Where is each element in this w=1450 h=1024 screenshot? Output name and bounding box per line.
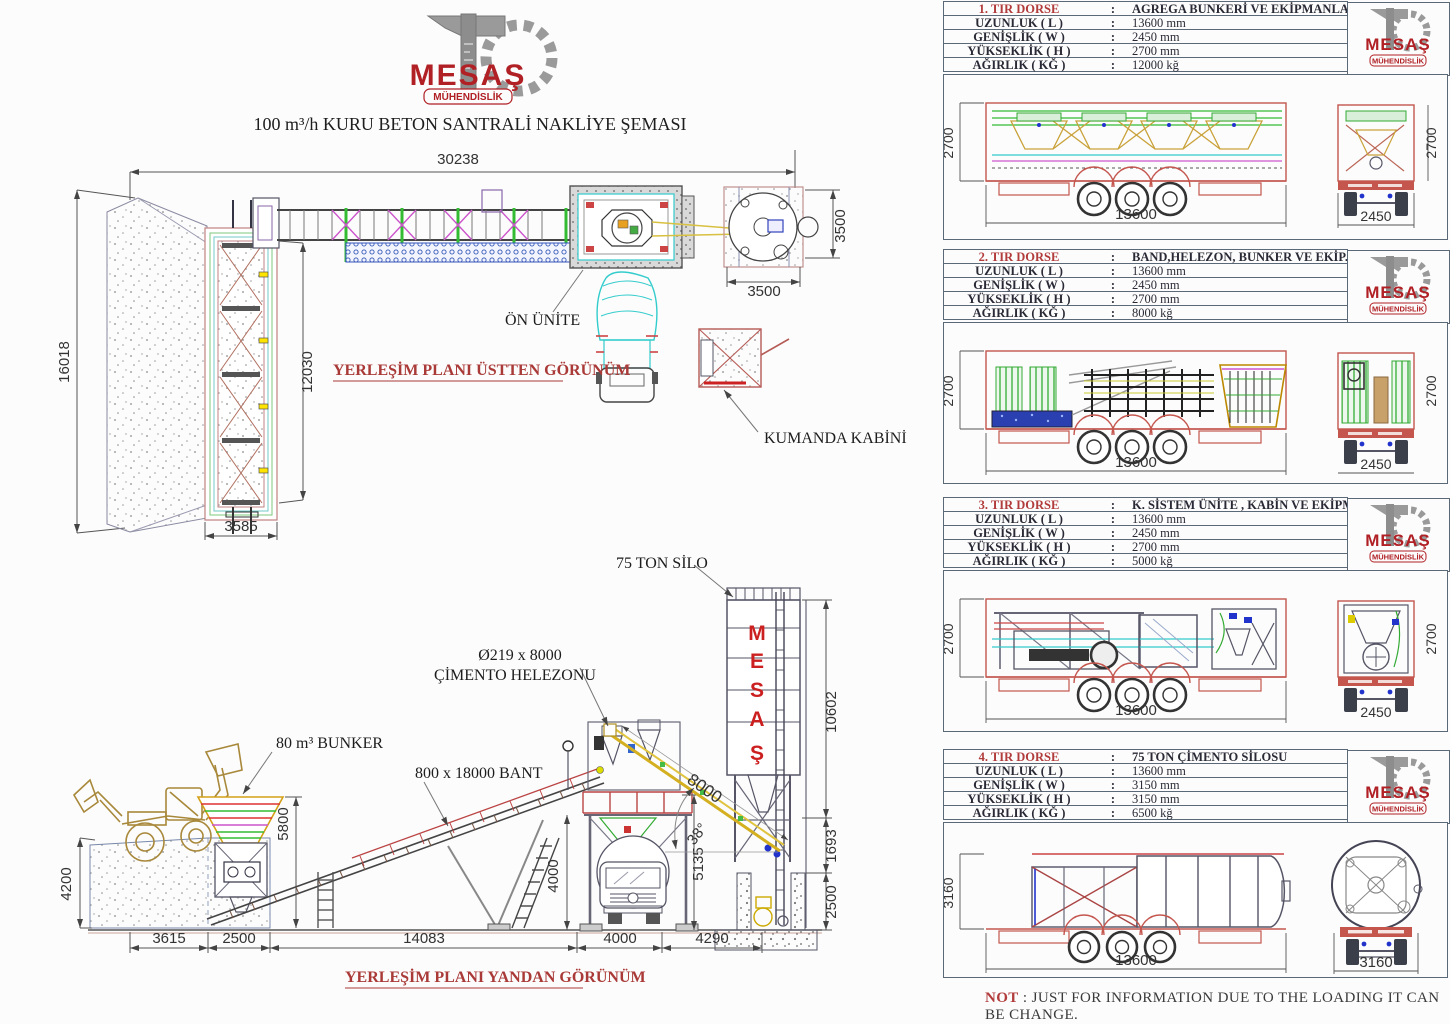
dim-text-12030: 12030 bbox=[299, 351, 316, 393]
silo-letter-m: M bbox=[748, 622, 766, 645]
colon: : bbox=[1094, 2, 1132, 17]
dim-text-2500-h: 2500 bbox=[222, 930, 255, 947]
trailer-drawing-3: 2700 13600 2450 2700 bbox=[943, 570, 1448, 732]
silo-letter-s2: Ş bbox=[750, 742, 764, 765]
dim-text-3585: 3585 bbox=[224, 518, 257, 535]
table-row: 2. TIR DORSE : BAND,HELEZON, BUNKER VE E… bbox=[943, 249, 1348, 264]
silo-top-view bbox=[724, 187, 818, 267]
dim-text-4000-h: 4000 bbox=[603, 930, 636, 947]
row-value: 8000 kğ bbox=[1132, 306, 1347, 321]
spec-block-3: 3. TIR DORSE : K. SİSTEM ÜNİTE , KABİN V… bbox=[943, 498, 1448, 568]
logo-name: MESAŞ bbox=[1365, 783, 1430, 802]
side-view: 80 m³ BUNKER 5800 4200 bbox=[58, 554, 840, 988]
row-label: 1. TIR DORSE bbox=[944, 2, 1094, 17]
row-label: YÜKSEKLİK ( H ) bbox=[944, 292, 1094, 307]
row-label: UZUNLUK ( L ) bbox=[944, 264, 1094, 279]
trailer-dim-rear-height: 2700 bbox=[1423, 127, 1439, 158]
table-row: YÜKSEKLİK ( H ) : 3150 mm bbox=[943, 791, 1348, 806]
footer-note: NOT : JUST FOR INFORMATION DUE TO THE LO… bbox=[985, 990, 1450, 1024]
row-label: UZUNLUK ( L ) bbox=[944, 512, 1094, 527]
row-label: YÜKSEKLİK ( H ) bbox=[944, 792, 1094, 807]
table-row: AĞIRLIK ( KĞ ) : 5000 kğ bbox=[943, 553, 1348, 568]
trailer-dim-rear-width: 2450 bbox=[1360, 208, 1391, 224]
table-row: 3. TIR DORSE : K. SİSTEM ÜNİTE , KABİN V… bbox=[943, 497, 1348, 512]
dim-text-3500-v: 3500 bbox=[832, 209, 849, 242]
row-value: 2450 mm bbox=[1132, 526, 1347, 541]
dim-text-5800: 5800 bbox=[275, 807, 292, 840]
belt-leader bbox=[424, 782, 448, 826]
dim-text-10602: 10602 bbox=[823, 691, 840, 733]
row-value: BAND,HELEZON, BUNKER VE EKİP. bbox=[1132, 250, 1348, 265]
row-label: UZUNLUK ( L ) bbox=[944, 764, 1094, 779]
trailer-dim-rear-width: 2450 bbox=[1360, 456, 1391, 472]
trailer-dim-length: 13600 bbox=[1115, 952, 1157, 969]
table-row: AĞIRLIK ( KĞ ) : 8000 kğ bbox=[943, 305, 1348, 320]
table-row: UZUNLUK ( L ) : 13600 mm bbox=[943, 511, 1348, 526]
silo-letter-e: E bbox=[750, 650, 764, 673]
colon: : bbox=[1094, 498, 1132, 513]
silo-pit bbox=[715, 873, 817, 950]
logo-name: MESAŞ bbox=[410, 59, 527, 92]
table-row: 1. TIR DORSE : AGREGA BUNKERİ VE EKİPMAN… bbox=[943, 1, 1348, 16]
colon: : bbox=[1094, 264, 1132, 279]
spec-table-2: 2. TIR DORSE : BAND,HELEZON, BUNKER VE E… bbox=[943, 249, 1348, 320]
row-label: 2. TIR DORSE bbox=[944, 250, 1094, 265]
row-label: AĞIRLIK ( KĞ ) bbox=[944, 58, 1094, 73]
trailer-dim-height: 2700 bbox=[944, 127, 956, 158]
logo-sub: MÜHENDİSLİK bbox=[1372, 805, 1425, 814]
trailer-rear-view: 2450 2700 bbox=[1338, 353, 1439, 473]
logo-name: MESAŞ bbox=[1365, 35, 1430, 54]
logo-sub: MÜHENDİSLİK bbox=[433, 90, 503, 103]
dim-text-14083: 14083 bbox=[403, 930, 445, 947]
row-label: 4. TIR DORSE bbox=[944, 750, 1094, 765]
row-value: 2450 mm bbox=[1132, 278, 1347, 293]
logo-sub: MÜHENDİSLİK bbox=[1372, 57, 1425, 66]
row-value: 3150 mm bbox=[1132, 792, 1347, 807]
table-row: UZUNLUK ( L ) : 13600 mm bbox=[943, 763, 1348, 778]
silo-trailer-rear-view: 3160 bbox=[1332, 841, 1422, 974]
colon: : bbox=[1094, 30, 1132, 45]
top-view-caption: YERLEŞİM PLANI ÜSTTEN GÖRÜNÜM bbox=[333, 360, 630, 379]
label-screw-2: ÇİMENTO HELEZONU bbox=[434, 666, 596, 684]
row-value: 6500 kğ bbox=[1132, 806, 1347, 821]
conveyor-top-view bbox=[253, 190, 570, 262]
side-view-caption: YERLEŞİM PLANI YANDAN GÖRÜNÜM bbox=[345, 967, 646, 986]
row-label: GENİŞLİK ( W ) bbox=[944, 30, 1094, 45]
trailer-dim-rear-width: 3160 bbox=[1359, 954, 1392, 971]
row-value: 13600 mm bbox=[1132, 764, 1347, 779]
row-value: 2700 mm bbox=[1132, 44, 1347, 59]
row-value: AGREGA BUNKERİ VE EKİPMANLARI bbox=[1132, 2, 1363, 17]
dim-text-4200: 4200 bbox=[58, 867, 75, 900]
trailer-dim-rear-height: 2700 bbox=[1423, 375, 1439, 406]
mixer-unit-top-view bbox=[570, 186, 742, 268]
spec-table-4: 4. TIR DORSE : 75 TON ÇİMENTO SİLOSU UZU… bbox=[943, 749, 1348, 820]
colon: : bbox=[1094, 750, 1132, 765]
trailer-dim-length: 13600 bbox=[1115, 206, 1157, 223]
colon: : bbox=[1094, 250, 1132, 265]
row-label: GENİŞLİK ( W ) bbox=[944, 278, 1094, 293]
table-row: AĞIRLIK ( KĞ ) : 6500 kğ bbox=[943, 805, 1348, 820]
colon: : bbox=[1094, 512, 1132, 527]
row-value: 3150 mm bbox=[1132, 778, 1347, 793]
colon: : bbox=[1094, 526, 1132, 541]
spec-table-1: 1. TIR DORSE : AGREGA BUNKERİ VE EKİPMAN… bbox=[943, 1, 1348, 72]
trailer-drawing-4: 3160 13600 3160 bbox=[943, 822, 1448, 978]
row-value: 5000 kğ bbox=[1132, 554, 1347, 569]
row-label: UZUNLUK ( L ) bbox=[944, 16, 1094, 31]
control-cabin-top-view bbox=[699, 329, 789, 432]
trailer-dim-height: 2700 bbox=[944, 375, 956, 406]
ramp-top-view bbox=[107, 198, 207, 532]
trailer-dim-height: 2700 bbox=[944, 623, 956, 654]
main-drawing: MESAŞ MÜHENDİSLİK 100 m³/h KURU BETON SA… bbox=[0, 0, 940, 1021]
row-label: YÜKSEKLİK ( H ) bbox=[944, 44, 1094, 59]
silo-letter-s: S bbox=[750, 679, 764, 702]
mesas-logo-small: MESAŞ MÜHENDİSLİK bbox=[1347, 750, 1450, 824]
row-value: 2700 mm bbox=[1132, 292, 1347, 307]
dim-text-38deg: 38° bbox=[684, 820, 711, 848]
note-text: : JUST FOR INFORMATION DUE TO THE LOADIN… bbox=[985, 990, 1439, 1023]
mesas-logo-small: MESAŞ MÜHENDİSLİK bbox=[1347, 498, 1450, 572]
row-value: 13600 mm bbox=[1132, 512, 1347, 527]
row-label: AĞIRLIK ( KĞ ) bbox=[944, 306, 1094, 321]
access-ladder bbox=[318, 872, 333, 928]
dim-text-3500-h: 3500 bbox=[747, 283, 780, 300]
silo-letter-a: A bbox=[749, 708, 764, 731]
row-label: GENİŞLİK ( W ) bbox=[944, 778, 1094, 793]
dim-text-1693: 1693 bbox=[823, 829, 840, 862]
table-row: YÜKSEKLİK ( H ) : 2700 mm bbox=[943, 291, 1348, 306]
row-label: AĞIRLIK ( KĞ ) bbox=[944, 806, 1094, 821]
dim-text-2500-v: 2500 bbox=[823, 885, 840, 918]
row-value: 13600 mm bbox=[1132, 264, 1347, 279]
row-label: YÜKSEKLİK ( H ) bbox=[944, 540, 1094, 555]
mesas-logo-small: MESAŞ MÜHENDİSLİK bbox=[1347, 250, 1450, 324]
table-row: 4. TIR DORSE : 75 TON ÇİMENTO SİLOSU bbox=[943, 749, 1348, 764]
colon: : bbox=[1094, 292, 1132, 307]
drawing-title: 100 m³/h KURU BETON SANTRALİ NAKLİYE ŞEM… bbox=[253, 114, 686, 134]
row-label: AĞIRLIK ( KĞ ) bbox=[944, 554, 1094, 569]
mesas-logo-main: MESAŞ MÜHENDİSLİK bbox=[410, 14, 552, 104]
dim-text-4000-v: 4000 bbox=[545, 859, 562, 892]
colon: : bbox=[1094, 16, 1132, 31]
label-bunker: 80 m³ BUNKER bbox=[276, 735, 383, 752]
trailer-side-view: 2700 13600 bbox=[944, 103, 1286, 227]
dim-text-30238: 30238 bbox=[437, 151, 479, 168]
table-row: GENİŞLİK ( W ) : 2450 mm bbox=[943, 29, 1348, 44]
colon: : bbox=[1094, 278, 1132, 293]
colon: : bbox=[1094, 806, 1132, 821]
front-unit-leader bbox=[553, 270, 583, 312]
row-value: 75 TON ÇİMENTO SİLOSU bbox=[1132, 750, 1347, 765]
colon: : bbox=[1094, 540, 1132, 555]
trailer-rear-view: 2450 2700 bbox=[1338, 105, 1439, 228]
spec-table-3: 3. TIR DORSE : K. SİSTEM ÜNİTE , KABİN V… bbox=[943, 497, 1348, 568]
logo-name: MESAŞ bbox=[1365, 283, 1430, 302]
trailer-side-view: 2700 13600 bbox=[944, 351, 1286, 475]
label-control-cabin: KUMANDA KABİNİ bbox=[764, 429, 907, 447]
dim-text-16018: 16018 bbox=[56, 341, 73, 383]
note-prefix: NOT bbox=[985, 990, 1019, 1006]
trailer-rear-view: 2450 2700 bbox=[1338, 601, 1439, 720]
trailer-drawing-1: 2700 13600 2450 bbox=[943, 74, 1448, 240]
truck-mixer-top-view bbox=[596, 272, 658, 402]
row-label: GENİŞLİK ( W ) bbox=[944, 526, 1094, 541]
logo-sub: MÜHENDİSLİK bbox=[1372, 553, 1425, 562]
trailer-dim-rear-width: 2450 bbox=[1360, 704, 1391, 720]
label-front-unit: ÖN ÜNİTE bbox=[505, 311, 580, 329]
silo-trailer-side-view: 3160 13600 bbox=[944, 854, 1290, 973]
spec-block-1: 1. TIR DORSE : AGREGA BUNKERİ VE EKİPMAN… bbox=[943, 2, 1448, 72]
dim-text-4290: 4290 bbox=[695, 930, 728, 947]
trailer-dim-length: 13600 bbox=[1115, 454, 1157, 471]
colon: : bbox=[1094, 44, 1132, 59]
table-row: YÜKSEKLİK ( H ) : 2700 mm bbox=[943, 43, 1348, 58]
bunker-leader bbox=[243, 752, 272, 794]
spec-block-2: 2. TIR DORSE : BAND,HELEZON, BUNKER VE E… bbox=[943, 250, 1448, 320]
trailer-dim-height: 3160 bbox=[944, 877, 956, 908]
row-value: 2700 mm bbox=[1132, 540, 1347, 555]
top-view: 30238 16018 bbox=[56, 150, 907, 540]
colon: : bbox=[1094, 778, 1132, 793]
table-row: GENİŞLİK ( W ) : 2450 mm bbox=[943, 525, 1348, 540]
row-value: 12000 kğ bbox=[1132, 58, 1347, 73]
colon: : bbox=[1094, 792, 1132, 807]
colon: : bbox=[1094, 58, 1132, 73]
label-belt: 800 x 18000 BANT bbox=[415, 765, 543, 782]
spec-block-4: 4. TIR DORSE : 75 TON ÇİMENTO SİLOSU UZU… bbox=[943, 750, 1448, 820]
colon: : bbox=[1094, 554, 1132, 569]
label-silo: 75 TON SİLO bbox=[616, 554, 708, 572]
colon: : bbox=[1094, 306, 1132, 321]
trailer-dim-length: 13600 bbox=[1115, 702, 1157, 719]
table-row: YÜKSEKLİK ( H ) : 2700 mm bbox=[943, 539, 1348, 554]
logo-name: MESAŞ bbox=[1365, 531, 1430, 550]
bunker-top-view bbox=[205, 200, 277, 534]
table-row: AĞIRLIK ( KĞ ) : 12000 kğ bbox=[943, 57, 1348, 72]
table-row: UZUNLUK ( L ) : 13600 mm bbox=[943, 15, 1348, 30]
table-row: GENİŞLİK ( W ) : 2450 mm bbox=[943, 277, 1348, 292]
colon: : bbox=[1094, 764, 1132, 779]
row-value: 13600 mm bbox=[1132, 16, 1347, 31]
trailer-drawing-2: 2700 13600 2450 2700 bbox=[943, 322, 1448, 484]
label-screw-1: Ø219 x 8000 bbox=[478, 647, 562, 664]
row-label: 3. TIR DORSE bbox=[944, 498, 1094, 513]
mixer-building-side bbox=[563, 720, 698, 931]
table-row: UZUNLUK ( L ) : 13600 mm bbox=[943, 263, 1348, 278]
dim-text-3615: 3615 bbox=[152, 930, 185, 947]
table-row: GENİŞLİK ( W ) : 3150 mm bbox=[943, 777, 1348, 792]
trailer-dim-rear-height: 2700 bbox=[1423, 623, 1439, 654]
logo-sub: MÜHENDİSLİK bbox=[1372, 305, 1425, 314]
row-value: 2450 mm bbox=[1132, 30, 1347, 45]
trailer-side-view: 2700 13600 bbox=[944, 599, 1286, 723]
mesas-logo-small: MESAŞ MÜHENDİSLİK bbox=[1347, 2, 1450, 76]
